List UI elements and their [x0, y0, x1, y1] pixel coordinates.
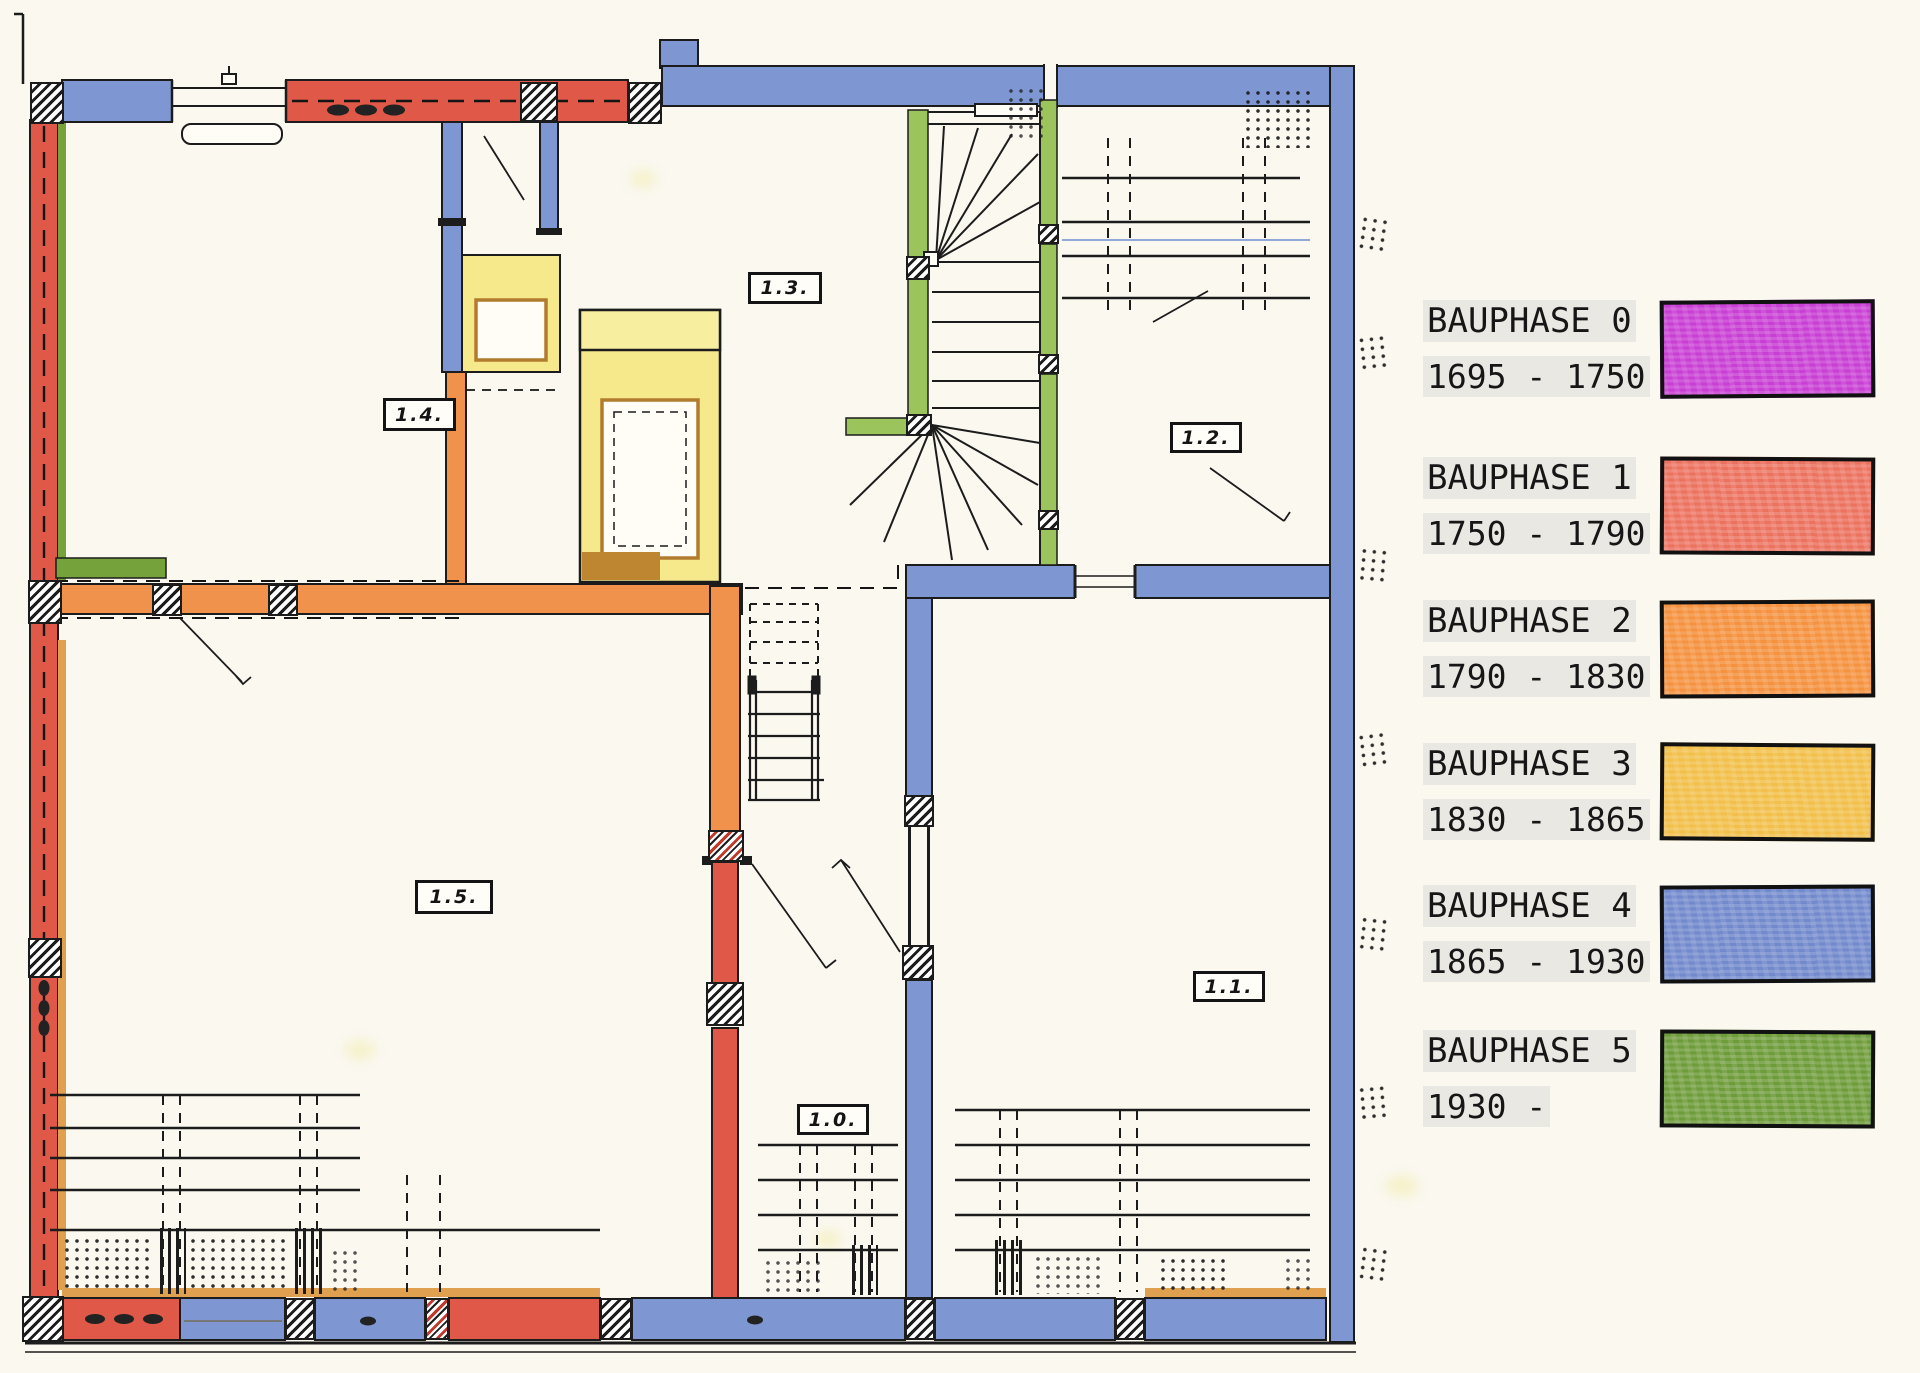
property-line — [14, 14, 23, 84]
room-label-1-3: 1.3. — [748, 272, 822, 304]
speckle-patch — [765, 1260, 825, 1294]
wall-stones — [39, 105, 764, 1326]
scanned-floor-plan-page: 1.4. 1.3. 1.2. 1.5. 1.0. 1.1. BAUPHASE 0… — [0, 0, 1920, 1373]
room-label-text: 1.2. — [1182, 427, 1231, 449]
window-bay-room12 — [1062, 138, 1310, 312]
room-label-1-5: 1.5. — [415, 880, 493, 914]
chimney-blocks — [462, 255, 720, 582]
section-mark — [1358, 216, 1393, 256]
legend-title: BAUPHASE 1 — [1423, 457, 1636, 499]
section-mark — [1358, 731, 1392, 770]
hatch-block — [708, 830, 744, 862]
section-mark — [1358, 917, 1392, 956]
hatch-block — [906, 256, 930, 280]
speckle-patch — [332, 1250, 358, 1292]
legend-title: BAUPHASE 3 — [1423, 743, 1636, 785]
legend-years: 1695 - 1750 — [1423, 356, 1650, 397]
section-mark — [1358, 1085, 1391, 1123]
hatch-block — [28, 938, 62, 978]
mullion-bars — [295, 1228, 325, 1294]
legend-swatch-bauphase-2 — [1660, 599, 1876, 698]
legend-years: 1830 - 1865 — [1423, 799, 1650, 840]
section-mark — [1358, 548, 1391, 586]
hatch-block — [628, 82, 662, 124]
legend-swatch-bauphase-1 — [1660, 456, 1876, 555]
hatch-block — [285, 1298, 315, 1340]
legend-swatch-bauphase-3 — [1660, 742, 1876, 841]
hatch-block — [28, 580, 62, 624]
legend-swatch-bauphase-0 — [1660, 299, 1876, 398]
stair-treads — [850, 104, 1040, 565]
room-label-text: 1.4. — [395, 404, 444, 426]
hatch-block — [902, 945, 934, 980]
section-mark — [1358, 335, 1392, 374]
room-label-1-0: 1.0. — [797, 1104, 869, 1135]
legend-title: BAUPHASE 2 — [1423, 600, 1636, 642]
mullion-bars — [852, 1245, 878, 1295]
hatch-block — [425, 1298, 449, 1340]
speckle-patch — [1285, 1258, 1313, 1294]
hatch-block — [906, 414, 932, 436]
ladder-stair — [748, 604, 824, 800]
blue-wall-window — [1075, 561, 1135, 602]
speckle-patch — [1008, 88, 1046, 138]
hatch-block — [905, 1298, 935, 1340]
room-label-1-4: 1.4. — [383, 398, 456, 431]
hatch-block — [1038, 224, 1059, 244]
room-label-text: 1.5. — [430, 886, 479, 908]
legend-years: 1930 - — [1423, 1086, 1550, 1127]
hatch-block — [268, 584, 298, 616]
room-label-text: 1.1. — [1205, 976, 1254, 998]
legend-swatch-bauphase-5 — [1660, 1029, 1876, 1128]
hatch-block — [30, 82, 64, 124]
mullion-bars — [995, 1240, 1023, 1295]
hatch-block — [152, 584, 182, 616]
legend-swatch-bauphase-4 — [1660, 884, 1876, 983]
hatch-block — [520, 82, 558, 122]
mullion-bars — [160, 1228, 186, 1294]
speckle-patch — [1035, 1256, 1105, 1294]
hatch-block — [1038, 510, 1059, 530]
outer-walls — [30, 40, 1354, 1342]
legend-years: 1865 - 1930 — [1423, 941, 1650, 982]
hatch-block — [600, 1298, 632, 1340]
legend-title: BAUPHASE 4 — [1423, 885, 1636, 927]
speckle-patch — [1160, 1258, 1225, 1294]
speckle-patch — [1245, 90, 1313, 148]
room-label-1-1: 1.1. — [1193, 971, 1265, 1002]
legend-years: 1790 - 1830 — [1423, 656, 1650, 697]
room-label-1-2: 1.2. — [1170, 422, 1242, 453]
legend-years: 1750 - 1790 — [1423, 513, 1650, 554]
room-label-text: 1.0. — [809, 1109, 858, 1131]
hatch-block — [706, 982, 744, 1026]
legend-title: BAUPHASE 0 — [1423, 300, 1636, 342]
legend-title: BAUPHASE 5 — [1423, 1030, 1636, 1072]
speckle-patch — [64, 1238, 154, 1293]
hatch-block — [1038, 354, 1059, 374]
staircase — [846, 100, 1057, 565]
hatch-block — [904, 795, 934, 827]
speckle-patch — [190, 1238, 285, 1293]
room-label-text: 1.3. — [761, 277, 810, 299]
top-window — [172, 66, 286, 144]
hatch-block — [1115, 1298, 1145, 1340]
hatch-block — [22, 1296, 64, 1342]
section-mark — [1358, 1246, 1392, 1285]
